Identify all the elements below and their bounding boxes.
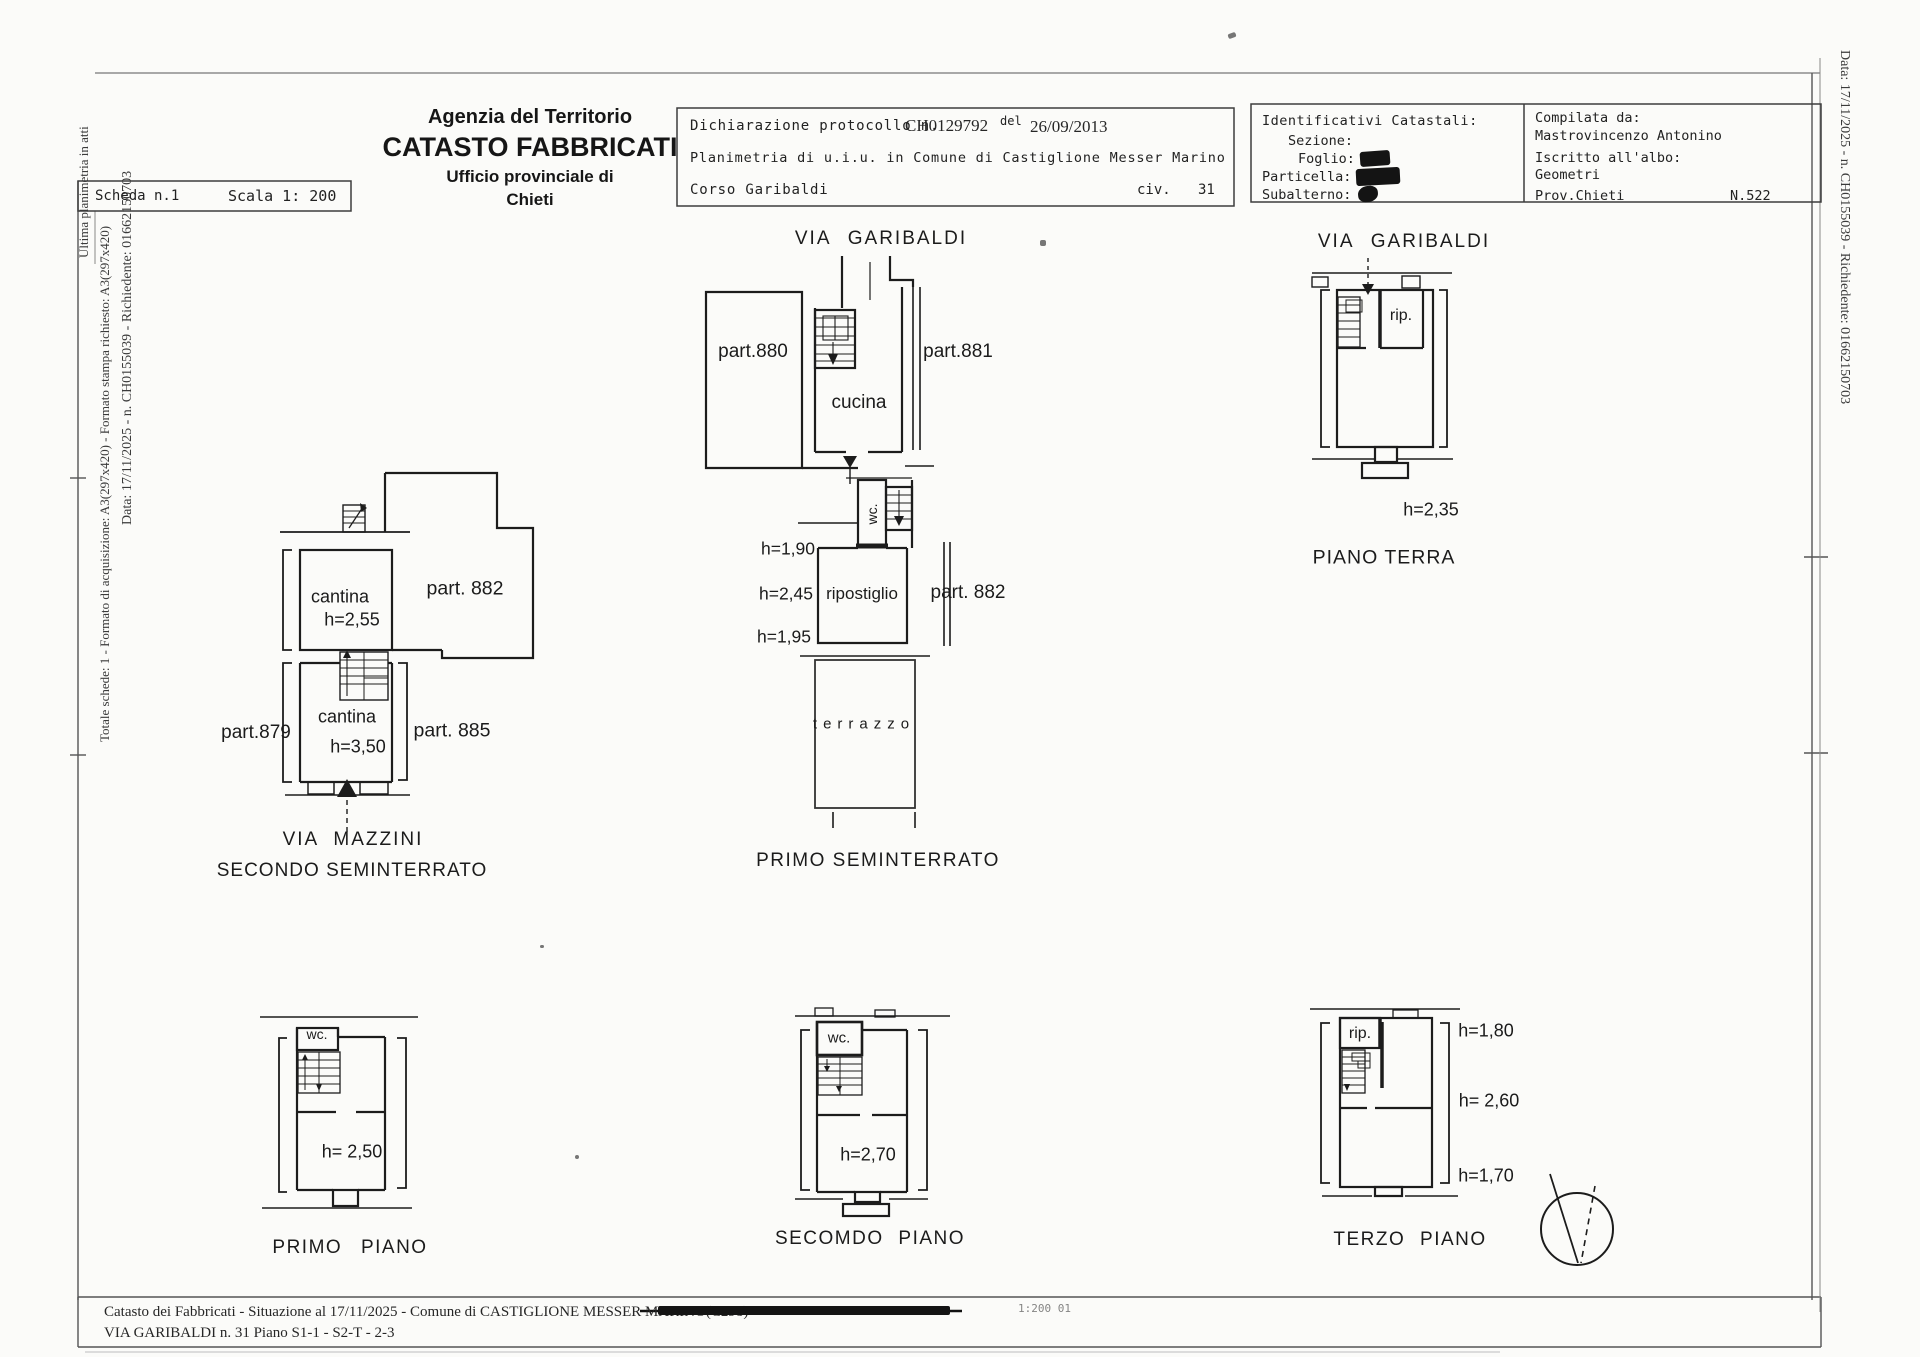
height-label-190: h=1,90 <box>761 539 815 560</box>
scan-artifact <box>540 945 544 948</box>
height-label-170: h=1,70 <box>1458 1166 1514 1187</box>
cadastral-foglio-label: Foglio: <box>1298 151 1355 167</box>
cadastral-title: Identificativi Catastali: <box>1262 113 1478 129</box>
height-label-250: h= 2,50 <box>322 1142 383 1163</box>
height-label-180: h=1,80 <box>1458 1021 1514 1042</box>
parcel-label-880: part.880 <box>718 341 788 363</box>
cadastral-subalterno-label: Subalterno: <box>1262 187 1351 203</box>
left-margin-text-1: Data: 17/11/2025 - n. CH0155039 - Richie… <box>120 70 136 525</box>
floor-title-secondo-seminterrato: SECONDO SEMINTERRATO <box>217 860 488 882</box>
parcel-label-881: part.881 <box>923 341 993 363</box>
plan-piano-terra-walls <box>1312 258 1453 478</box>
agency-line1: Agenzia del Territorio <box>375 106 685 129</box>
cadastral-particella-label: Particella: <box>1262 169 1351 185</box>
plan-primo-seminterrato-arrows <box>828 354 904 526</box>
compiler-province: Prov.Chieti <box>1535 188 1624 204</box>
footer-redaction-bar <box>658 1306 950 1315</box>
height-label-270: h=2,70 <box>840 1145 896 1166</box>
right-margin-text: Data: 17/11/2025 - n. CH0155039 - Richie… <box>1836 50 1852 595</box>
floor-title-primo-seminterrato: PRIMO SEMINTERRATO <box>756 850 1000 872</box>
agency-header: Agenzia del Territorio CATASTO FABBRICAT… <box>375 106 685 210</box>
room-label-cucina: cucina <box>832 392 887 414</box>
room-label-ripostiglio: ripostiglio <box>826 584 898 604</box>
north-arrow <box>1541 1174 1613 1265</box>
agency-line4: Chieti <box>375 190 685 210</box>
height-label-235: h=2,35 <box>1403 500 1459 521</box>
plan-primo-piano-walls <box>260 1017 418 1208</box>
declaration-civ-label: civ. <box>1137 182 1171 198</box>
parcel-label-879: part.879 <box>221 722 291 744</box>
height-label-260: h= 2,60 <box>1459 1091 1520 1112</box>
declaration-date: 26/09/2013 <box>1030 117 1107 137</box>
declaration-street: Corso Garibaldi <box>690 182 828 198</box>
parcel-label-882-left: part. 882 <box>427 578 504 601</box>
foglio-redaction-mark <box>1360 150 1391 167</box>
parcel-label-882-center: part. 882 <box>931 582 1006 604</box>
compiler-register-number: N.522 <box>1730 188 1771 204</box>
agency-line3: Ufficio provinciale di <box>375 167 685 187</box>
declaration-protocol-number: CH0129792 <box>905 116 988 136</box>
room-label-rip-terzo: rip. <box>1349 1025 1371 1043</box>
street-label-via-mazzini: VIA MAZZINI <box>283 829 424 851</box>
street-label-via-garibaldi-center: VIA GARIBALDI <box>795 228 967 250</box>
compiler-title: Compilata da: <box>1535 110 1641 126</box>
scale-value: Scala 1: 200 <box>228 187 336 205</box>
footer-address-line: VIA GARIBALDI n. 31 Piano S1-1 - S2-T - … <box>104 1325 395 1342</box>
room-label-cantina-upper: cantina <box>311 587 369 608</box>
room-label-wc-secondo-piano: wc. <box>828 1030 851 1047</box>
compiler-albo-value: Geometri <box>1535 167 1600 183</box>
height-label-255: h=2,55 <box>324 610 380 631</box>
height-label-195: h=1,95 <box>757 627 811 648</box>
left-margin-text-3: Ultima planimetria in atti <box>76 73 92 258</box>
parcel-label-885: part. 885 <box>414 720 491 743</box>
room-label-wc-primo-piano: wc. <box>307 1026 328 1042</box>
declaration-del: del <box>1000 114 1022 128</box>
plan-terzo-piano-walls <box>1310 1009 1460 1196</box>
particella-redaction-mark <box>1356 167 1401 186</box>
compiler-albo-label: Iscritto all'albo: <box>1535 150 1681 166</box>
room-label-wc-seminterrato: wc. <box>864 504 880 525</box>
room-label-terrazzo: terrazzo <box>813 716 915 733</box>
street-label-via-garibaldi-right: VIA GARIBALDI <box>1318 231 1490 253</box>
scan-artifact <box>1040 240 1046 246</box>
height-label-350: h=3,50 <box>330 737 386 758</box>
scheda-number: Scheda n.1 <box>95 188 179 204</box>
cadastral-sezione-label: Sezione: <box>1288 133 1353 149</box>
floor-title-secondo-piano: SECOMDO PIANO <box>775 1228 965 1250</box>
floor-title-terzo-piano: TERZO PIANO <box>1333 1229 1486 1251</box>
declaration-protocol-label: Dichiarazione protocollo n. <box>690 118 939 134</box>
footer-page-note: 1:200 01 <box>1018 1302 1071 1315</box>
left-margin-text-2: Totale schede: 1 - Formato di acquisizio… <box>97 72 113 742</box>
compiler-name: Mastrovincenzo Antonino <box>1535 128 1722 144</box>
room-label-rip-terra: rip. <box>1390 307 1412 325</box>
agency-line2: CATASTO FABBRICATI <box>375 132 685 163</box>
plan-secondo-seminterrato-walls <box>280 473 533 832</box>
plan-secondo-piano-walls <box>795 1008 950 1216</box>
scan-artifact <box>575 1155 579 1159</box>
floor-title-primo-piano: PRIMO PIANO <box>272 1237 427 1259</box>
declaration-description: Planimetria di u.i.u. in Comune di Casti… <box>690 150 1226 166</box>
declaration-civ-value: 31 <box>1198 182 1215 198</box>
cadastral-document-page: Data: 17/11/2025 - n. CH0155039 - Richie… <box>0 0 1920 1357</box>
floor-title-piano-terra: PIANO TERRA <box>1313 547 1456 570</box>
height-label-245: h=2,45 <box>759 584 813 605</box>
room-label-cantina-lower: cantina <box>318 707 376 728</box>
